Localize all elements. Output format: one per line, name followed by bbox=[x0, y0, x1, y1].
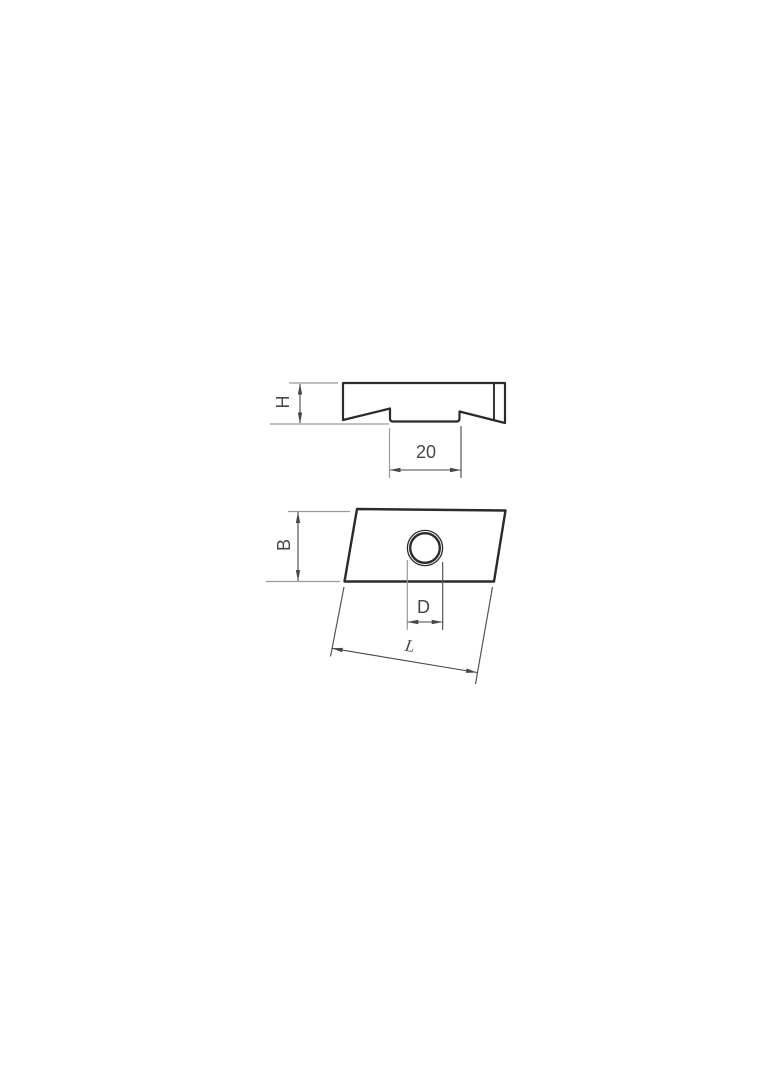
dimension-d bbox=[407, 560, 442, 630]
arrow-left-icon bbox=[390, 468, 401, 472]
arrow-down-icon bbox=[298, 413, 302, 424]
arrow-left-icon bbox=[407, 620, 418, 624]
dimension-label-b: B bbox=[275, 539, 293, 551]
dimension-label-slot-width: 20 bbox=[416, 443, 436, 461]
l-extension-right bbox=[476, 587, 493, 684]
plan-view bbox=[345, 509, 506, 582]
arrow-right-icon bbox=[450, 468, 461, 472]
thread-hole-outer-circle bbox=[407, 530, 442, 565]
thread-hole-inner-circle bbox=[410, 533, 440, 563]
arrow-up-icon bbox=[296, 512, 300, 523]
l-extension-left bbox=[331, 587, 345, 657]
side-profile-view bbox=[343, 383, 505, 423]
drawing-page: H 20 B D L bbox=[0, 0, 784, 1066]
dimension-l bbox=[331, 587, 493, 684]
plan-view-outline bbox=[345, 509, 506, 582]
dimension-label-h: H bbox=[274, 396, 292, 409]
arrow-up-icon bbox=[298, 384, 302, 395]
arrow-down-icon bbox=[296, 570, 300, 581]
arrow-down-right-icon bbox=[466, 669, 477, 673]
dimension-label-d: D bbox=[417, 598, 430, 616]
arrow-right-icon bbox=[432, 620, 443, 624]
arrow-up-left-icon bbox=[332, 648, 343, 652]
technical-drawing bbox=[0, 0, 784, 1066]
side-view-outline bbox=[343, 383, 505, 423]
